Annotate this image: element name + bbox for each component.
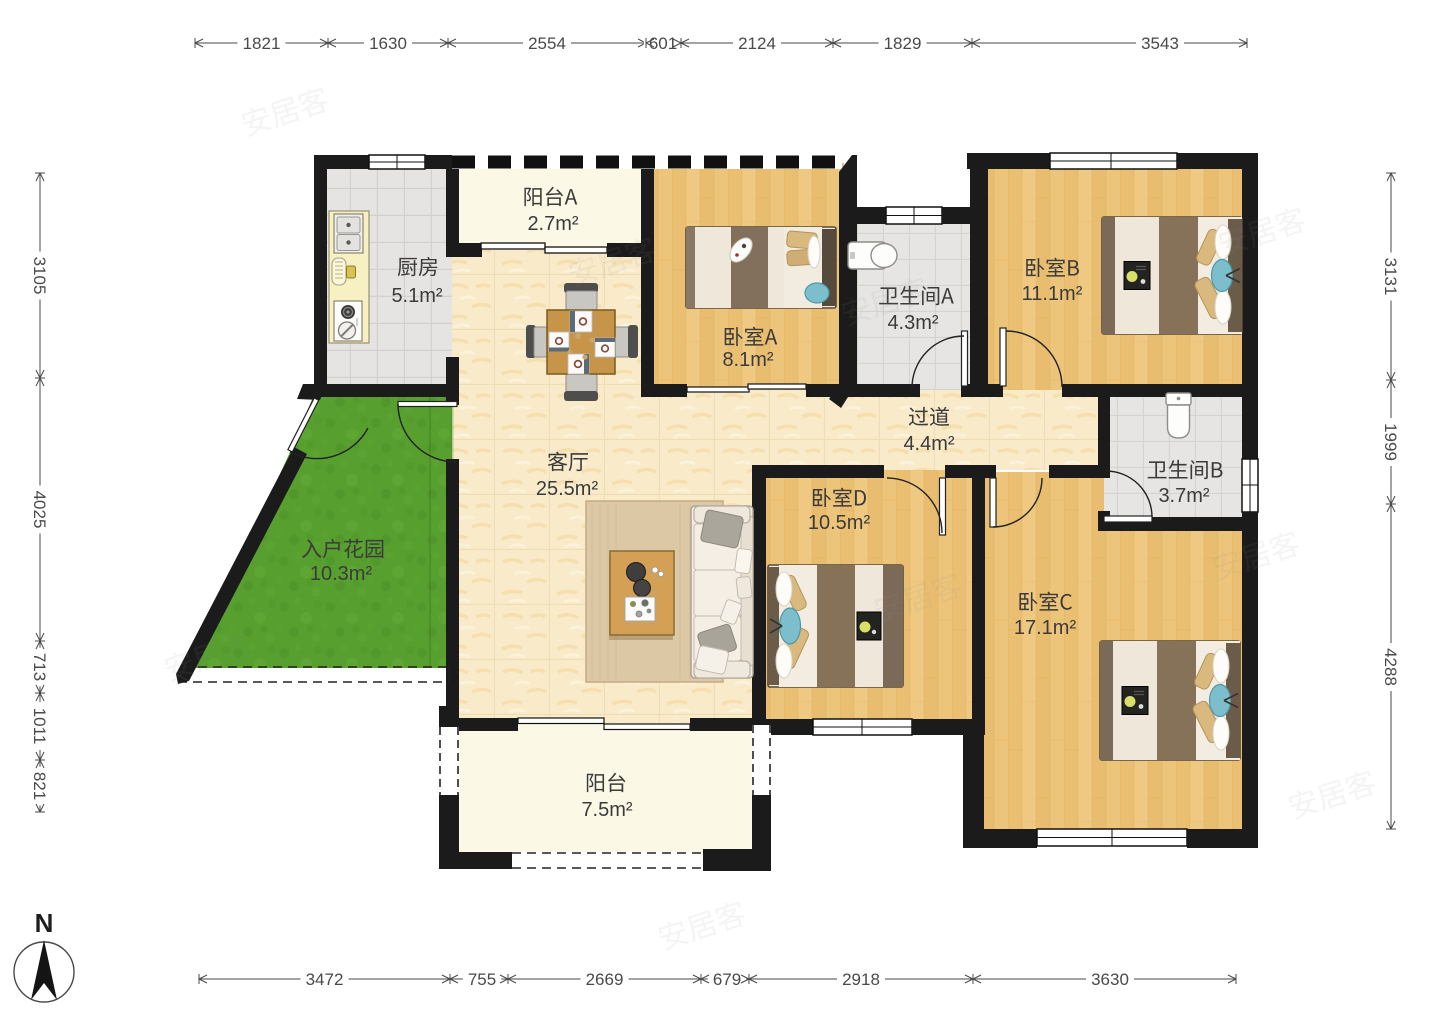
svg-text:2918: 2918 [842,970,880,989]
svg-text:3472: 3472 [306,970,344,989]
svg-text:3630: 3630 [1091,970,1129,989]
svg-text:2.7m²: 2.7m² [527,213,578,235]
svg-text:2554: 2554 [528,34,566,53]
svg-text:11.1m²: 11.1m² [1022,283,1083,305]
svg-text:821: 821 [30,772,49,800]
svg-text:25.5m²: 25.5m² [536,478,599,500]
svg-text:1821: 1821 [243,34,281,53]
svg-text:679: 679 [713,970,741,989]
svg-text:3543: 3543 [1141,34,1179,53]
svg-text:4288: 4288 [1381,648,1400,686]
svg-text:1630: 1630 [369,34,407,53]
svg-text:1829: 1829 [884,34,922,53]
svg-text:601: 601 [649,34,677,53]
svg-text:2669: 2669 [586,970,624,989]
svg-text:10.5m²: 10.5m² [808,512,871,534]
svg-text:713: 713 [30,653,49,681]
svg-text:5.1m²: 5.1m² [391,285,442,307]
svg-text:2124: 2124 [738,34,776,53]
svg-text:4.3m²: 4.3m² [887,312,938,334]
svg-text:4.4m²: 4.4m² [903,433,954,455]
svg-text:3105: 3105 [30,257,49,295]
svg-text:17.1m²: 17.1m² [1014,617,1077,639]
svg-text:1011: 1011 [30,708,49,745]
svg-text:7.5m²: 7.5m² [581,799,632,821]
svg-text:3131: 3131 [1381,258,1400,296]
svg-text:1999: 1999 [1381,423,1400,461]
svg-text:N: N [35,908,54,938]
svg-text:8.1m²: 8.1m² [722,349,773,371]
svg-text:10.3m²: 10.3m² [310,563,373,585]
svg-text:3.7m²: 3.7m² [1158,485,1209,507]
svg-text:4025: 4025 [30,491,49,529]
svg-text:755: 755 [468,970,496,989]
